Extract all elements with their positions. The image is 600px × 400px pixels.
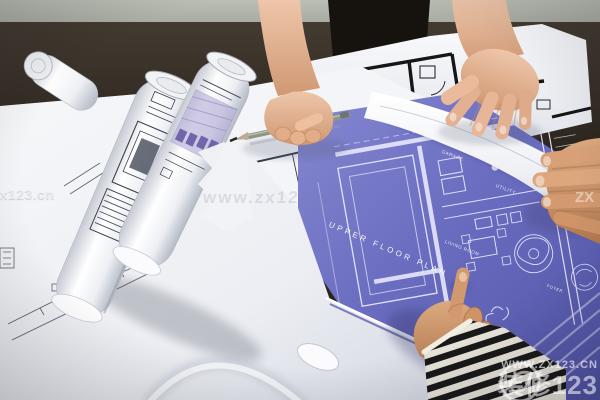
blueprint-photo-scene: UPPER FLOOR PLAN GARAGE UTILITY LIVING R… — [0, 0, 600, 400]
photo-artwork — [0, 0, 600, 400]
photo-vignette — [0, 0, 600, 400]
